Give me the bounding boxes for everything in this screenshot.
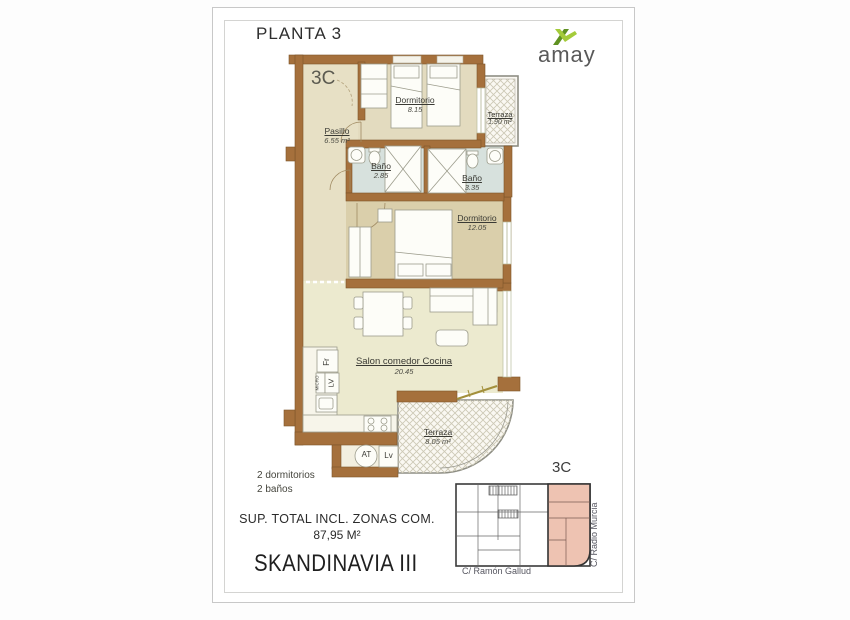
dining-table [363,292,403,336]
feature-bathrooms: 2 baños [257,484,293,495]
keyplan-unit-label: 3C [552,459,571,476]
sofa-chaise [473,288,497,325]
stairs [489,486,517,495]
label-fridge: Fr [317,350,335,374]
total-area-value: 87,95 M² [230,528,444,542]
scanned-floor-plan-page: PLANTA 3 amay [0,0,850,620]
nightstand [378,209,392,222]
label-terraza2: Terraza8.05 m² [424,427,452,446]
label-dishwasher: LV [322,375,340,392]
label-laundry: Lv [379,451,398,460]
floor-title: PLANTA 3 [256,24,342,44]
logo-text: amay [538,42,596,68]
project-name: SKANDINAVIA III [254,550,418,578]
elevator [498,510,518,518]
label-salon: Salon comedor Cocina20.45 [356,356,452,376]
label-terraza1: Terraza1.90 m² [487,110,512,126]
label-water-heater: AT [357,450,376,459]
label-bano1: Baño2.85 [371,161,391,180]
label-bano2: Baño3.35 [462,173,482,192]
label-pasillo: Pasillo6.55 m² [324,126,349,145]
coffee-table [436,330,468,346]
keyplan-street-bottom: C/ Ramón Gallud [462,566,531,576]
keyplan-street-right: C/ Radio Murcia [589,489,599,567]
toilet-2 [467,154,478,168]
feature-bedrooms: 2 dormitorios [257,470,315,481]
closet [361,64,387,108]
unit-3c-highlight [548,484,590,566]
label-dormitorio1: Dormitorio8.15 [395,95,434,114]
total-area-label: SUP. TOTAL INCL. ZONAS COM. [230,512,444,526]
label-dormitorio2: Dormitorio12.05 [457,213,496,232]
plan-unit-label: 3C [311,68,335,90]
